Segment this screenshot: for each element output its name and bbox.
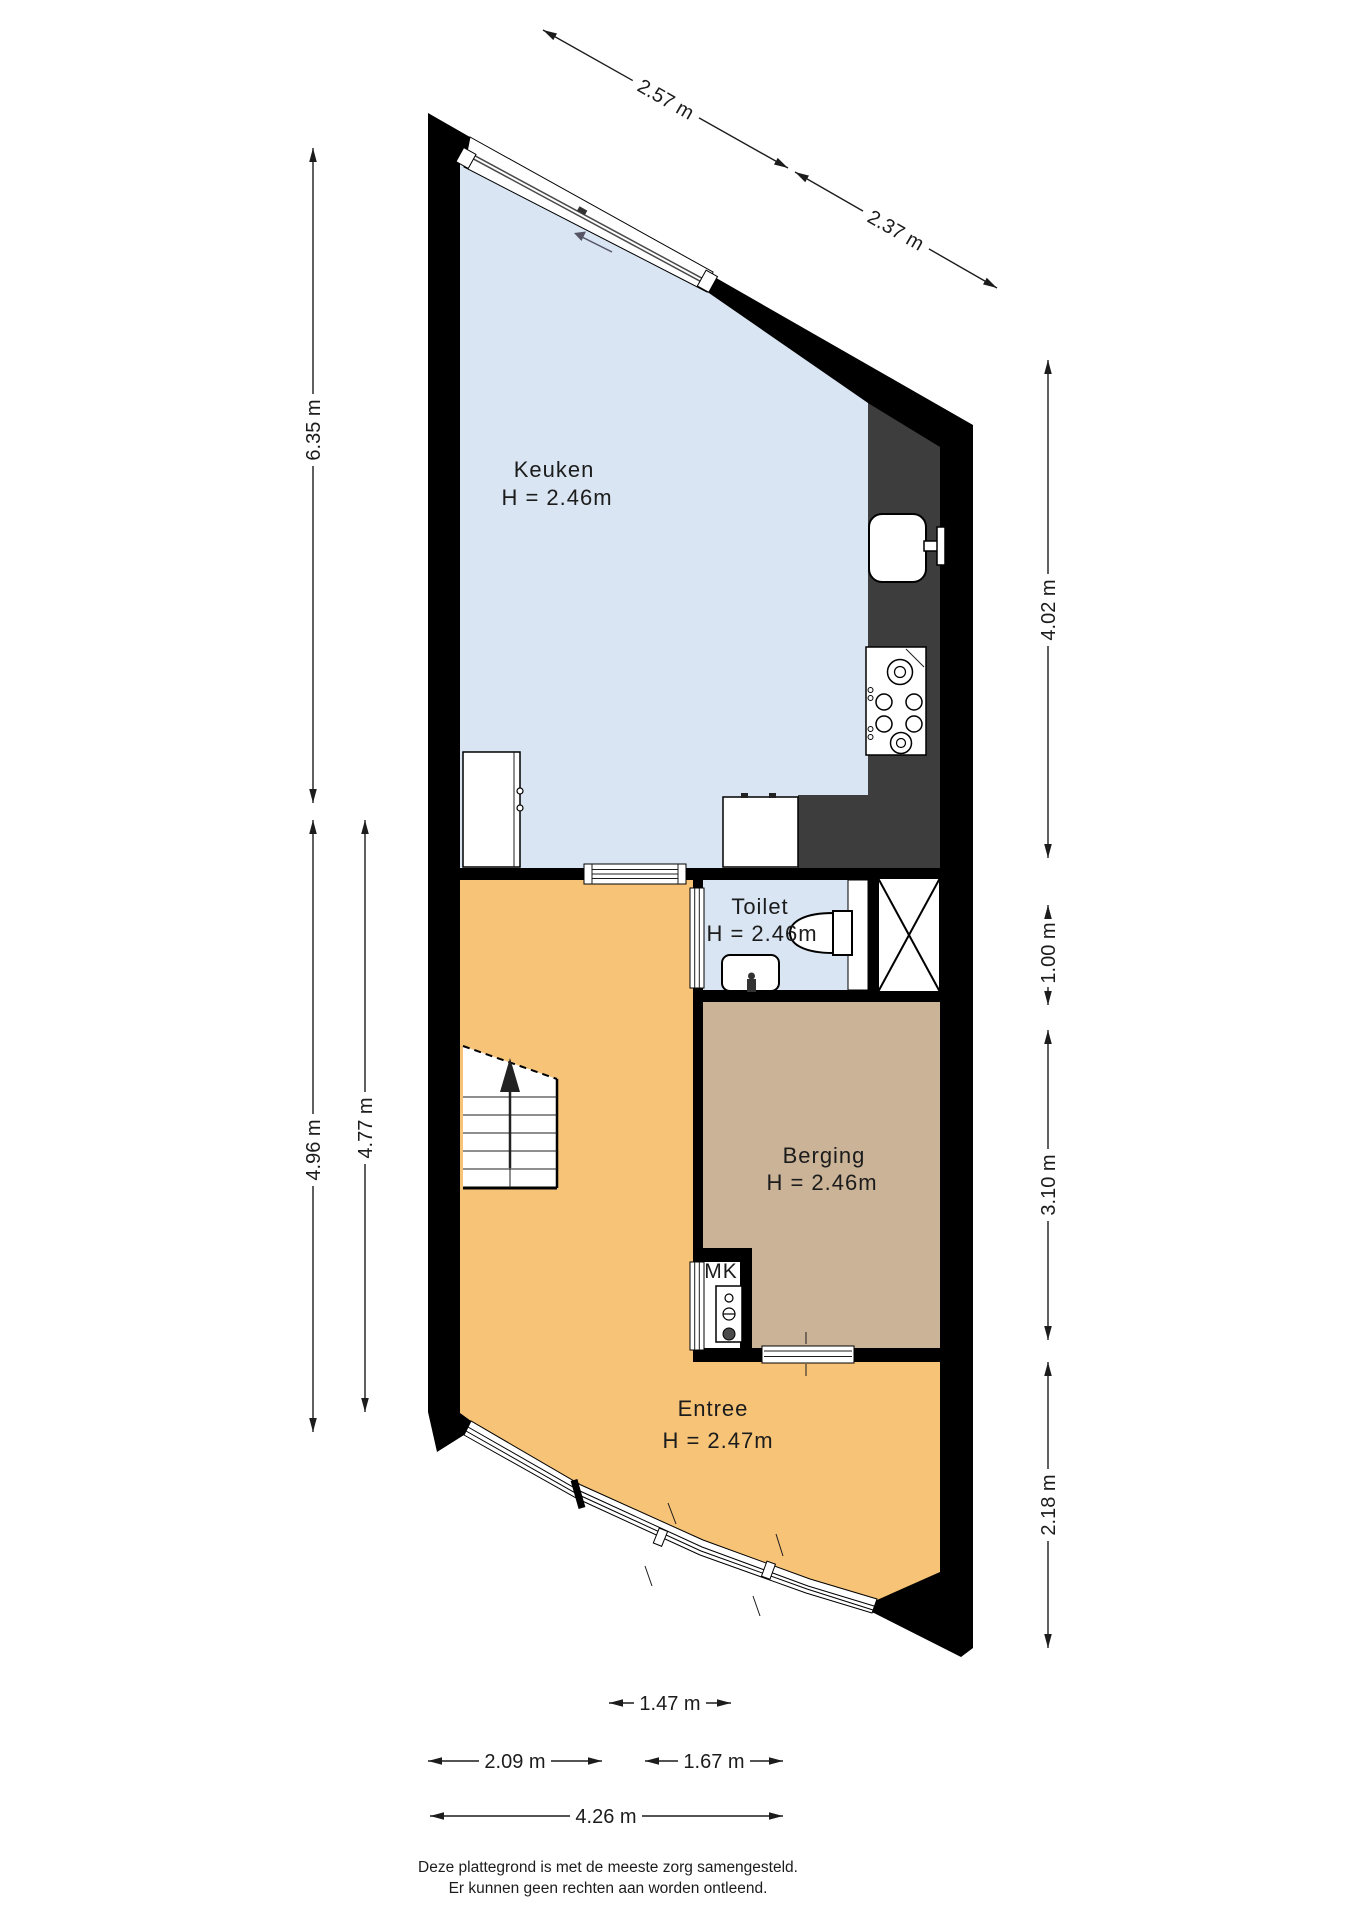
gas-hob — [866, 647, 926, 755]
dim-4-02: 4.02 m — [1036, 360, 1061, 858]
svg-text:3.10 m: 3.10 m — [1038, 1154, 1060, 1215]
svg-text:1.00 m: 1.00 m — [1038, 922, 1060, 983]
centerline-tick — [645, 1566, 652, 1586]
dim-6-35: 6.35 m — [301, 148, 326, 803]
footer-disclaimer: Deze plattegrond is met de meeste zorg s… — [418, 1859, 798, 1897]
dim-3-10: 3.10 m — [1036, 1030, 1061, 1340]
mk-label: MK — [704, 1260, 738, 1283]
svg-text:4.96 m: 4.96 m — [303, 1119, 325, 1180]
entree-label: Entree — [678, 1396, 749, 1421]
dim-4-26: 4.26 m — [430, 1804, 783, 1829]
meter-dial — [725, 1294, 733, 1302]
centerline-tick — [753, 1596, 760, 1616]
keuken-height: H = 2.46m — [501, 485, 612, 510]
berging-height: H = 2.46m — [766, 1170, 877, 1195]
shaft — [878, 878, 940, 992]
toilet-height: H = 2.46m — [706, 921, 817, 946]
meter-dial — [723, 1328, 735, 1340]
dim-1-67: 1.67 m — [645, 1749, 783, 1774]
dim-1-47: 1.47 m — [609, 1691, 731, 1716]
svg-text:1.67 m: 1.67 m — [683, 1751, 744, 1773]
svg-text:1.47 m: 1.47 m — [639, 1693, 700, 1715]
svg-text:2.09 m: 2.09 m — [484, 1751, 545, 1773]
berging-label: Berging — [783, 1143, 866, 1168]
passthrough-window — [584, 864, 686, 884]
svg-text:6.35 m: 6.35 m — [303, 399, 325, 460]
mk-door — [690, 1262, 704, 1350]
toilet-door — [690, 888, 704, 988]
fridge — [463, 752, 523, 867]
wash-basin — [722, 955, 779, 992]
svg-text:4.02 m: 4.02 m — [1038, 579, 1060, 640]
keuken-label: Keuken — [514, 457, 595, 482]
dim-2-18: 2.18 m — [1036, 1362, 1061, 1648]
dim-4-96: 4.96 m — [301, 820, 326, 1432]
dim-1-00: 1.00 m — [1036, 905, 1061, 1005]
dim-2-37: 2.37 m — [795, 172, 997, 288]
footer-line-1: Deze plattegrond is met de meeste zorg s… — [418, 1859, 798, 1876]
floorplan-canvas: Keuken H = 2.46m Toilet H = 2.46m Bergin… — [0, 0, 1358, 1920]
dim-2-57: 2.57 m — [543, 30, 788, 168]
svg-text:2.18 m: 2.18 m — [1038, 1474, 1060, 1535]
toilet-label: Toilet — [731, 894, 788, 919]
svg-text:4.26 m: 4.26 m — [575, 1806, 636, 1828]
dishwasher — [723, 793, 798, 867]
entree-height: H = 2.47m — [662, 1428, 773, 1453]
dim-4-77: 4.77 m — [353, 820, 378, 1412]
dim-2-09: 2.09 m — [428, 1749, 602, 1774]
footer-line-2: Er kunnen geen rechten aan worden ontlee… — [449, 1880, 768, 1897]
svg-text:4.77 m: 4.77 m — [355, 1097, 377, 1158]
